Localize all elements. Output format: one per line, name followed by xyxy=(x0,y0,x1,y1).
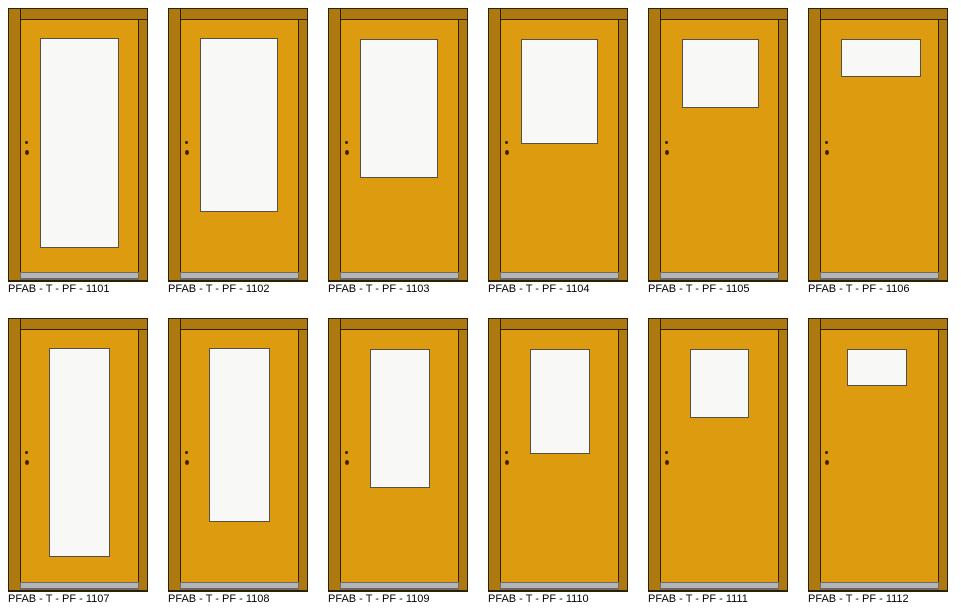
door-threshold xyxy=(660,272,779,280)
threshold-outline xyxy=(168,280,308,282)
door-lock-icon xyxy=(185,150,189,155)
door-lock-icon xyxy=(25,150,29,155)
door-type-label: PFAB - T - PF - 1102 xyxy=(168,283,308,296)
door-knob-icon xyxy=(185,141,188,144)
door-type-label: PFAB - T - PF - 1111 xyxy=(648,593,788,606)
door-lock-icon xyxy=(25,460,29,465)
door-threshold xyxy=(20,272,139,280)
door-lock-icon xyxy=(665,150,669,155)
door-knob-icon xyxy=(345,451,348,454)
door-types-sheet: PFAB - T - PF - 1101 PFAB - T - PF - 110… xyxy=(0,0,961,615)
door-knob-icon xyxy=(25,451,28,454)
door-frame-right-jamb xyxy=(458,329,468,592)
door-assembly[interactable] xyxy=(488,8,628,282)
door-knob-icon xyxy=(825,451,828,454)
threshold-outline xyxy=(488,280,628,282)
door-frame-right-jamb xyxy=(298,329,308,592)
door-figure-1107: PFAB - T - PF - 1107 xyxy=(8,318,148,606)
door-knob-icon xyxy=(825,141,828,144)
threshold-outline xyxy=(328,590,468,592)
door-threshold xyxy=(820,582,939,590)
threshold-outline xyxy=(648,590,788,592)
door-type-label: PFAB - T - PF - 1112 xyxy=(808,593,948,606)
door-threshold xyxy=(180,272,299,280)
door-figure-1112: PFAB - T - PF - 1112 xyxy=(808,318,948,606)
glass-panel xyxy=(209,348,270,522)
door-lock-icon xyxy=(505,460,509,465)
door-threshold xyxy=(340,582,459,590)
door-figure-1104: PFAB - T - PF - 1104 xyxy=(488,8,628,296)
glass-panel xyxy=(200,38,278,212)
door-figure-1108: PFAB - T - PF - 1108 xyxy=(168,318,308,606)
door-threshold xyxy=(500,272,619,280)
glass-panel xyxy=(690,349,749,418)
door-frame-right-jamb xyxy=(138,19,148,282)
glass-panel xyxy=(40,38,119,248)
door-assembly[interactable] xyxy=(808,318,948,592)
door-assembly[interactable] xyxy=(8,8,148,282)
door-assembly[interactable] xyxy=(808,8,948,282)
door-row-2: PFAB - T - PF - 1107 PFAB - T - PF - 110… xyxy=(8,318,948,606)
door-lock-icon xyxy=(665,460,669,465)
threshold-outline xyxy=(808,280,948,282)
glass-panel xyxy=(847,349,907,386)
door-type-label: PFAB - T - PF - 1109 xyxy=(328,593,468,606)
door-assembly[interactable] xyxy=(168,318,308,592)
glass-panel xyxy=(360,39,438,178)
door-type-label: PFAB - T - PF - 1108 xyxy=(168,593,308,606)
door-type-label: PFAB - T - PF - 1101 xyxy=(8,283,148,296)
door-assembly[interactable] xyxy=(328,318,468,592)
door-type-label: PFAB - T - PF - 1107 xyxy=(8,593,148,606)
door-knob-icon xyxy=(665,141,668,144)
glass-panel xyxy=(530,349,590,454)
threshold-outline xyxy=(808,590,948,592)
door-threshold xyxy=(820,272,939,280)
door-threshold xyxy=(500,582,619,590)
threshold-outline xyxy=(488,590,628,592)
door-type-label: PFAB - T - PF - 1104 xyxy=(488,283,628,296)
door-figure-1105: PFAB - T - PF - 1105 xyxy=(648,8,788,296)
door-assembly[interactable] xyxy=(648,318,788,592)
glass-panel xyxy=(841,39,921,77)
door-assembly[interactable] xyxy=(488,318,628,592)
door-assembly[interactable] xyxy=(8,318,148,592)
glass-panel xyxy=(49,348,110,557)
door-lock-icon xyxy=(505,150,509,155)
door-threshold xyxy=(180,582,299,590)
door-frame-right-jamb xyxy=(938,19,948,282)
door-figure-1101: PFAB - T - PF - 1101 xyxy=(8,8,148,296)
door-knob-icon xyxy=(185,451,188,454)
door-threshold xyxy=(340,272,459,280)
door-knob-icon xyxy=(665,451,668,454)
door-figure-1109: PFAB - T - PF - 1109 xyxy=(328,318,468,606)
door-figure-1102: PFAB - T - PF - 1102 xyxy=(168,8,308,296)
door-knob-icon xyxy=(505,451,508,454)
door-threshold xyxy=(20,582,139,590)
door-row-1: PFAB - T - PF - 1101 PFAB - T - PF - 110… xyxy=(8,8,948,296)
door-frame-right-jamb xyxy=(138,329,148,592)
door-lock-icon xyxy=(185,460,189,465)
threshold-outline xyxy=(8,280,148,282)
door-frame-right-jamb xyxy=(618,329,628,592)
door-lock-icon xyxy=(345,460,349,465)
door-type-label: PFAB - T - PF - 1105 xyxy=(648,283,788,296)
door-figure-1111: PFAB - T - PF - 1111 xyxy=(648,318,788,606)
door-knob-icon xyxy=(345,141,348,144)
door-lock-icon xyxy=(825,460,829,465)
glass-panel xyxy=(521,39,598,144)
door-frame-right-jamb xyxy=(458,19,468,282)
glass-panel xyxy=(682,39,759,108)
door-assembly[interactable] xyxy=(168,8,308,282)
glass-panel xyxy=(370,349,430,488)
door-frame-right-jamb xyxy=(778,19,788,282)
threshold-outline xyxy=(648,280,788,282)
door-assembly[interactable] xyxy=(648,8,788,282)
door-type-label: PFAB - T - PF - 1103 xyxy=(328,283,468,296)
door-threshold xyxy=(660,582,779,590)
door-type-label: PFAB - T - PF - 1106 xyxy=(808,283,948,296)
door-frame-right-jamb xyxy=(778,329,788,592)
threshold-outline xyxy=(328,280,468,282)
threshold-outline xyxy=(168,590,308,592)
threshold-outline xyxy=(8,590,148,592)
door-assembly[interactable] xyxy=(328,8,468,282)
door-lock-icon xyxy=(825,150,829,155)
door-type-label: PFAB - T - PF - 1110 xyxy=(488,593,628,606)
door-lock-icon xyxy=(345,150,349,155)
door-frame-right-jamb xyxy=(618,19,628,282)
door-figure-1103: PFAB - T - PF - 1103 xyxy=(328,8,468,296)
door-knob-icon xyxy=(25,141,28,144)
door-knob-icon xyxy=(505,141,508,144)
door-frame-right-jamb xyxy=(298,19,308,282)
door-frame-right-jamb xyxy=(938,329,948,592)
door-figure-1106: PFAB - T - PF - 1106 xyxy=(808,8,948,296)
door-figure-1110: PFAB - T - PF - 1110 xyxy=(488,318,628,606)
